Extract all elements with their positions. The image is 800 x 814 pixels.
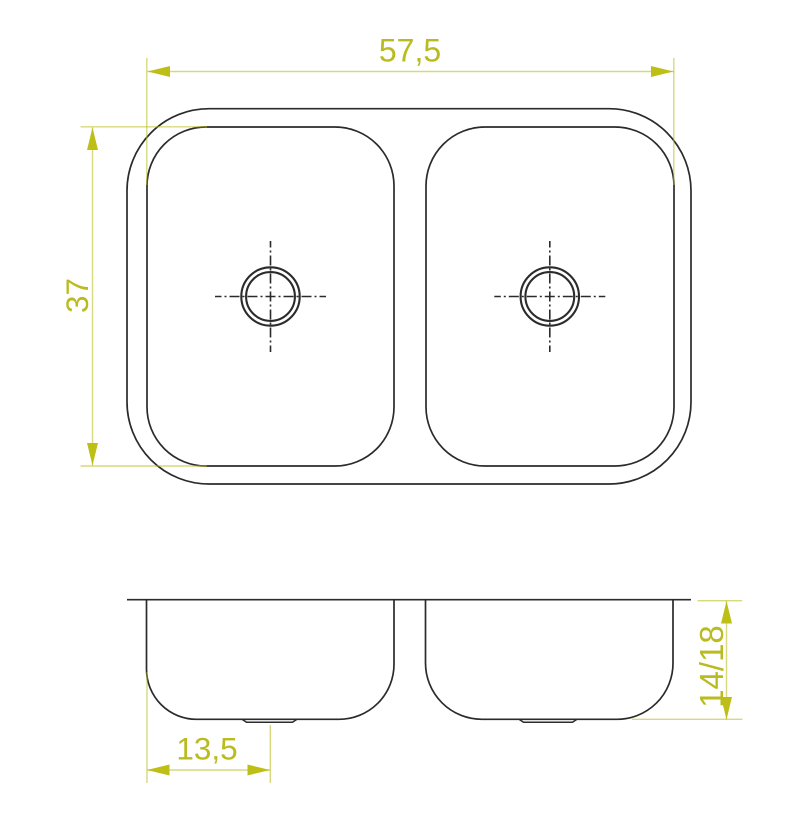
- svg-text:13,5: 13,5: [176, 731, 237, 767]
- svg-text:57,5: 57,5: [379, 33, 441, 69]
- svg-text:14/18: 14/18: [693, 625, 730, 708]
- svg-text:37: 37: [59, 278, 95, 313]
